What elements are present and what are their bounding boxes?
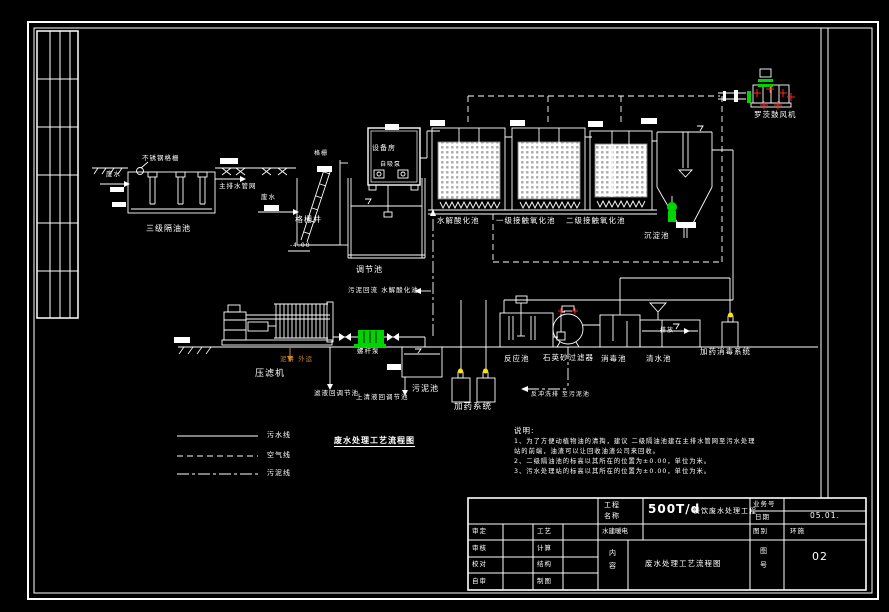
approver-label: 审定 bbox=[472, 528, 487, 535]
date-value: 05.01. bbox=[810, 512, 840, 520]
sheet-label-1: 图 bbox=[760, 548, 768, 555]
wastewater-in-label-1: 废水 bbox=[106, 171, 121, 178]
bio-tanks-drawing bbox=[428, 120, 657, 214]
tertiary-treatment-drawing bbox=[500, 296, 700, 347]
notes-line-3: 2、二级隔油池的标高以其所在的位置为±0.00，单位为米。 bbox=[514, 459, 711, 465]
notes-line-2: 站的前端，油渣可以让回收油渣公司来回收。 bbox=[514, 449, 660, 455]
oil-tank-label: 三级隔油池 bbox=[146, 225, 191, 233]
dosing-disinfection-label: 加药消毒系统 bbox=[700, 348, 751, 356]
equipment-room-drawing bbox=[368, 124, 440, 190]
dosing-disinfection-drawing bbox=[722, 313, 738, 348]
filter-press-drawing bbox=[222, 302, 333, 345]
elevation-label: -4.00 bbox=[290, 243, 311, 249]
discharge-label: 排放 bbox=[660, 328, 674, 334]
supernatant-return-label: 上清液回调节池 bbox=[356, 394, 409, 401]
screen-well-drawing bbox=[252, 160, 348, 251]
notes-line-1: 1、为了方便动植物油的清掏，建议 二级隔油池建在主排水管网至污水处理 bbox=[514, 439, 756, 445]
content-value: 废水处理工艺流程图 bbox=[645, 560, 722, 568]
category-label: 图别 bbox=[753, 528, 768, 535]
content-label-1: 内 bbox=[609, 550, 617, 557]
project-label-2: 名称 bbox=[604, 513, 620, 520]
screen-label: 格栅 bbox=[314, 151, 328, 157]
equipment-room-label: 设备房 bbox=[372, 145, 396, 152]
sludge-return-label: 污泥回流 水解酸化池 bbox=[348, 287, 419, 294]
screen-well-label: 格栅井 bbox=[295, 216, 322, 224]
mud-cake-label: 泥饼 外运 bbox=[280, 356, 313, 363]
revision-table bbox=[37, 31, 78, 318]
sludge-lines bbox=[433, 214, 568, 389]
screw-pump-drawing bbox=[333, 330, 425, 347]
process-label: 工艺 bbox=[537, 528, 552, 535]
quartz-sand-filter-label: 石英砂过滤器 bbox=[543, 354, 594, 362]
legend-sludge-line-label: 污泥线 bbox=[267, 470, 291, 477]
reviewer-label: 审核 bbox=[472, 545, 487, 552]
calculation-label: 计算 bbox=[537, 545, 552, 552]
dosing-system-label: 加药系统 bbox=[454, 403, 492, 412]
notes-line-4: 3、污水处理站的标高以其所在的位置为±0.00，单位为米。 bbox=[514, 469, 711, 475]
drafting-label: 制图 bbox=[537, 578, 552, 585]
screw-pump-label: 螺杆泵 bbox=[357, 348, 380, 355]
roots-blower-label: 罗茨鼓风机 bbox=[754, 111, 797, 119]
sheet-value: 02 bbox=[812, 551, 828, 562]
legend-lines bbox=[177, 436, 258, 474]
self-priming-pump-label: 自吸泵 bbox=[380, 162, 401, 168]
backwash-label: 反冲洗排 至污泥池 bbox=[531, 392, 590, 398]
reaction-tank-label: 反应池 bbox=[504, 355, 530, 363]
regulating-tank-label: 调节池 bbox=[356, 266, 383, 274]
contact-tank-1-label: 一级接触氧化池 bbox=[496, 217, 556, 225]
disinfection-tank-label: 消毒池 bbox=[601, 355, 627, 363]
sludge-tank-label: 污泥池 bbox=[412, 385, 439, 393]
stainless-screen-label: 不锈钢格栅 bbox=[142, 155, 180, 162]
disciplines-label: 水建暖电 bbox=[602, 528, 628, 535]
project-label-1: 工程 bbox=[604, 502, 620, 509]
wastewater-in-label-2: 废水 bbox=[261, 194, 276, 201]
job-no-label: 业务号 bbox=[753, 501, 776, 508]
content-label-2: 容 bbox=[609, 563, 617, 570]
notes-heading: 说明: bbox=[514, 427, 535, 435]
filtrate-return-label: 滤液回调节池 bbox=[314, 390, 359, 397]
cad-drawing-canvas: 不锈钢格栅 废水 主排水管网 三级隔油池 格栅 废水 格栅井 -4.00 设备房… bbox=[0, 0, 889, 612]
sheet-label-2: 号 bbox=[760, 562, 768, 569]
sedimentation-tank-label: 沉淀池 bbox=[644, 232, 670, 240]
date-label: 日期 bbox=[755, 514, 770, 521]
main-drain-label: 主排水管网 bbox=[219, 183, 257, 190]
clean-water-tank-label: 清水池 bbox=[646, 355, 672, 363]
structure-label: 结构 bbox=[537, 561, 552, 568]
project-name-suffix: 餐饮废水处理工程 bbox=[693, 508, 757, 515]
contact-tank-2-label: 二级接触氧化池 bbox=[566, 217, 626, 225]
hydrolysis-tank-label: 水解酸化池 bbox=[437, 217, 480, 225]
self-check-label: 自审 bbox=[472, 578, 487, 585]
proofread-label: 校对 bbox=[472, 561, 487, 568]
category-value: 环施 bbox=[790, 528, 805, 535]
legend-air-line-label: 空气线 bbox=[267, 452, 291, 459]
dosing-system-drawing bbox=[452, 369, 495, 403]
diagram-title: 废水处理工艺流程图 bbox=[334, 437, 415, 447]
filter-press-label: 压滤机 bbox=[255, 370, 285, 379]
roots-blower-drawing bbox=[718, 69, 795, 109]
legend-sewage-line-label: 污水线 bbox=[267, 432, 291, 439]
